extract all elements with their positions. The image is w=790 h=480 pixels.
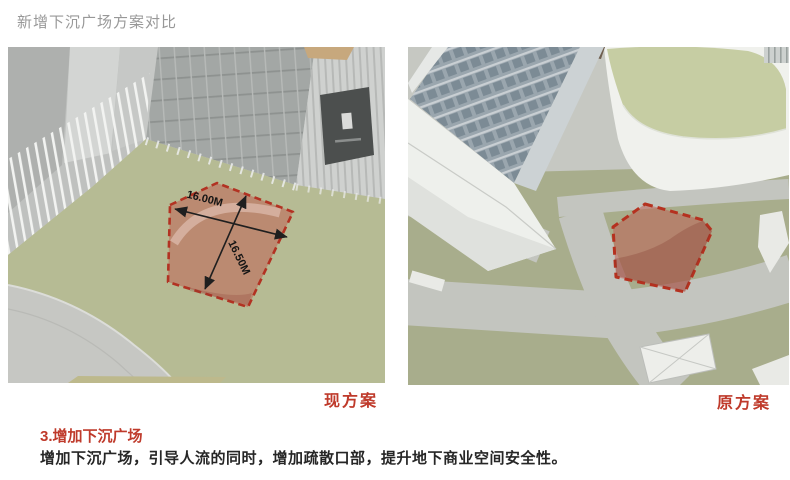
- caption-original-scheme: 原方案: [408, 389, 771, 413]
- page-title: 新增下沉广场方案对比: [17, 11, 177, 32]
- panel-current-scheme: 16.00M 16.50M: [8, 47, 385, 383]
- current-scheme-render: 16.00M 16.50M: [8, 47, 385, 383]
- slide-page: 新增下沉广场方案对比: [0, 0, 790, 480]
- note-heading: 3.增加下沉广场: [40, 425, 143, 446]
- caption-current-scheme: 现方案: [8, 387, 378, 411]
- original-scheme-render: [408, 47, 789, 385]
- note-body: 增加下沉广场，引导人流的同时，增加疏散口部，提升地下商业空间安全性。: [40, 447, 567, 468]
- panel-original-scheme: [408, 47, 789, 385]
